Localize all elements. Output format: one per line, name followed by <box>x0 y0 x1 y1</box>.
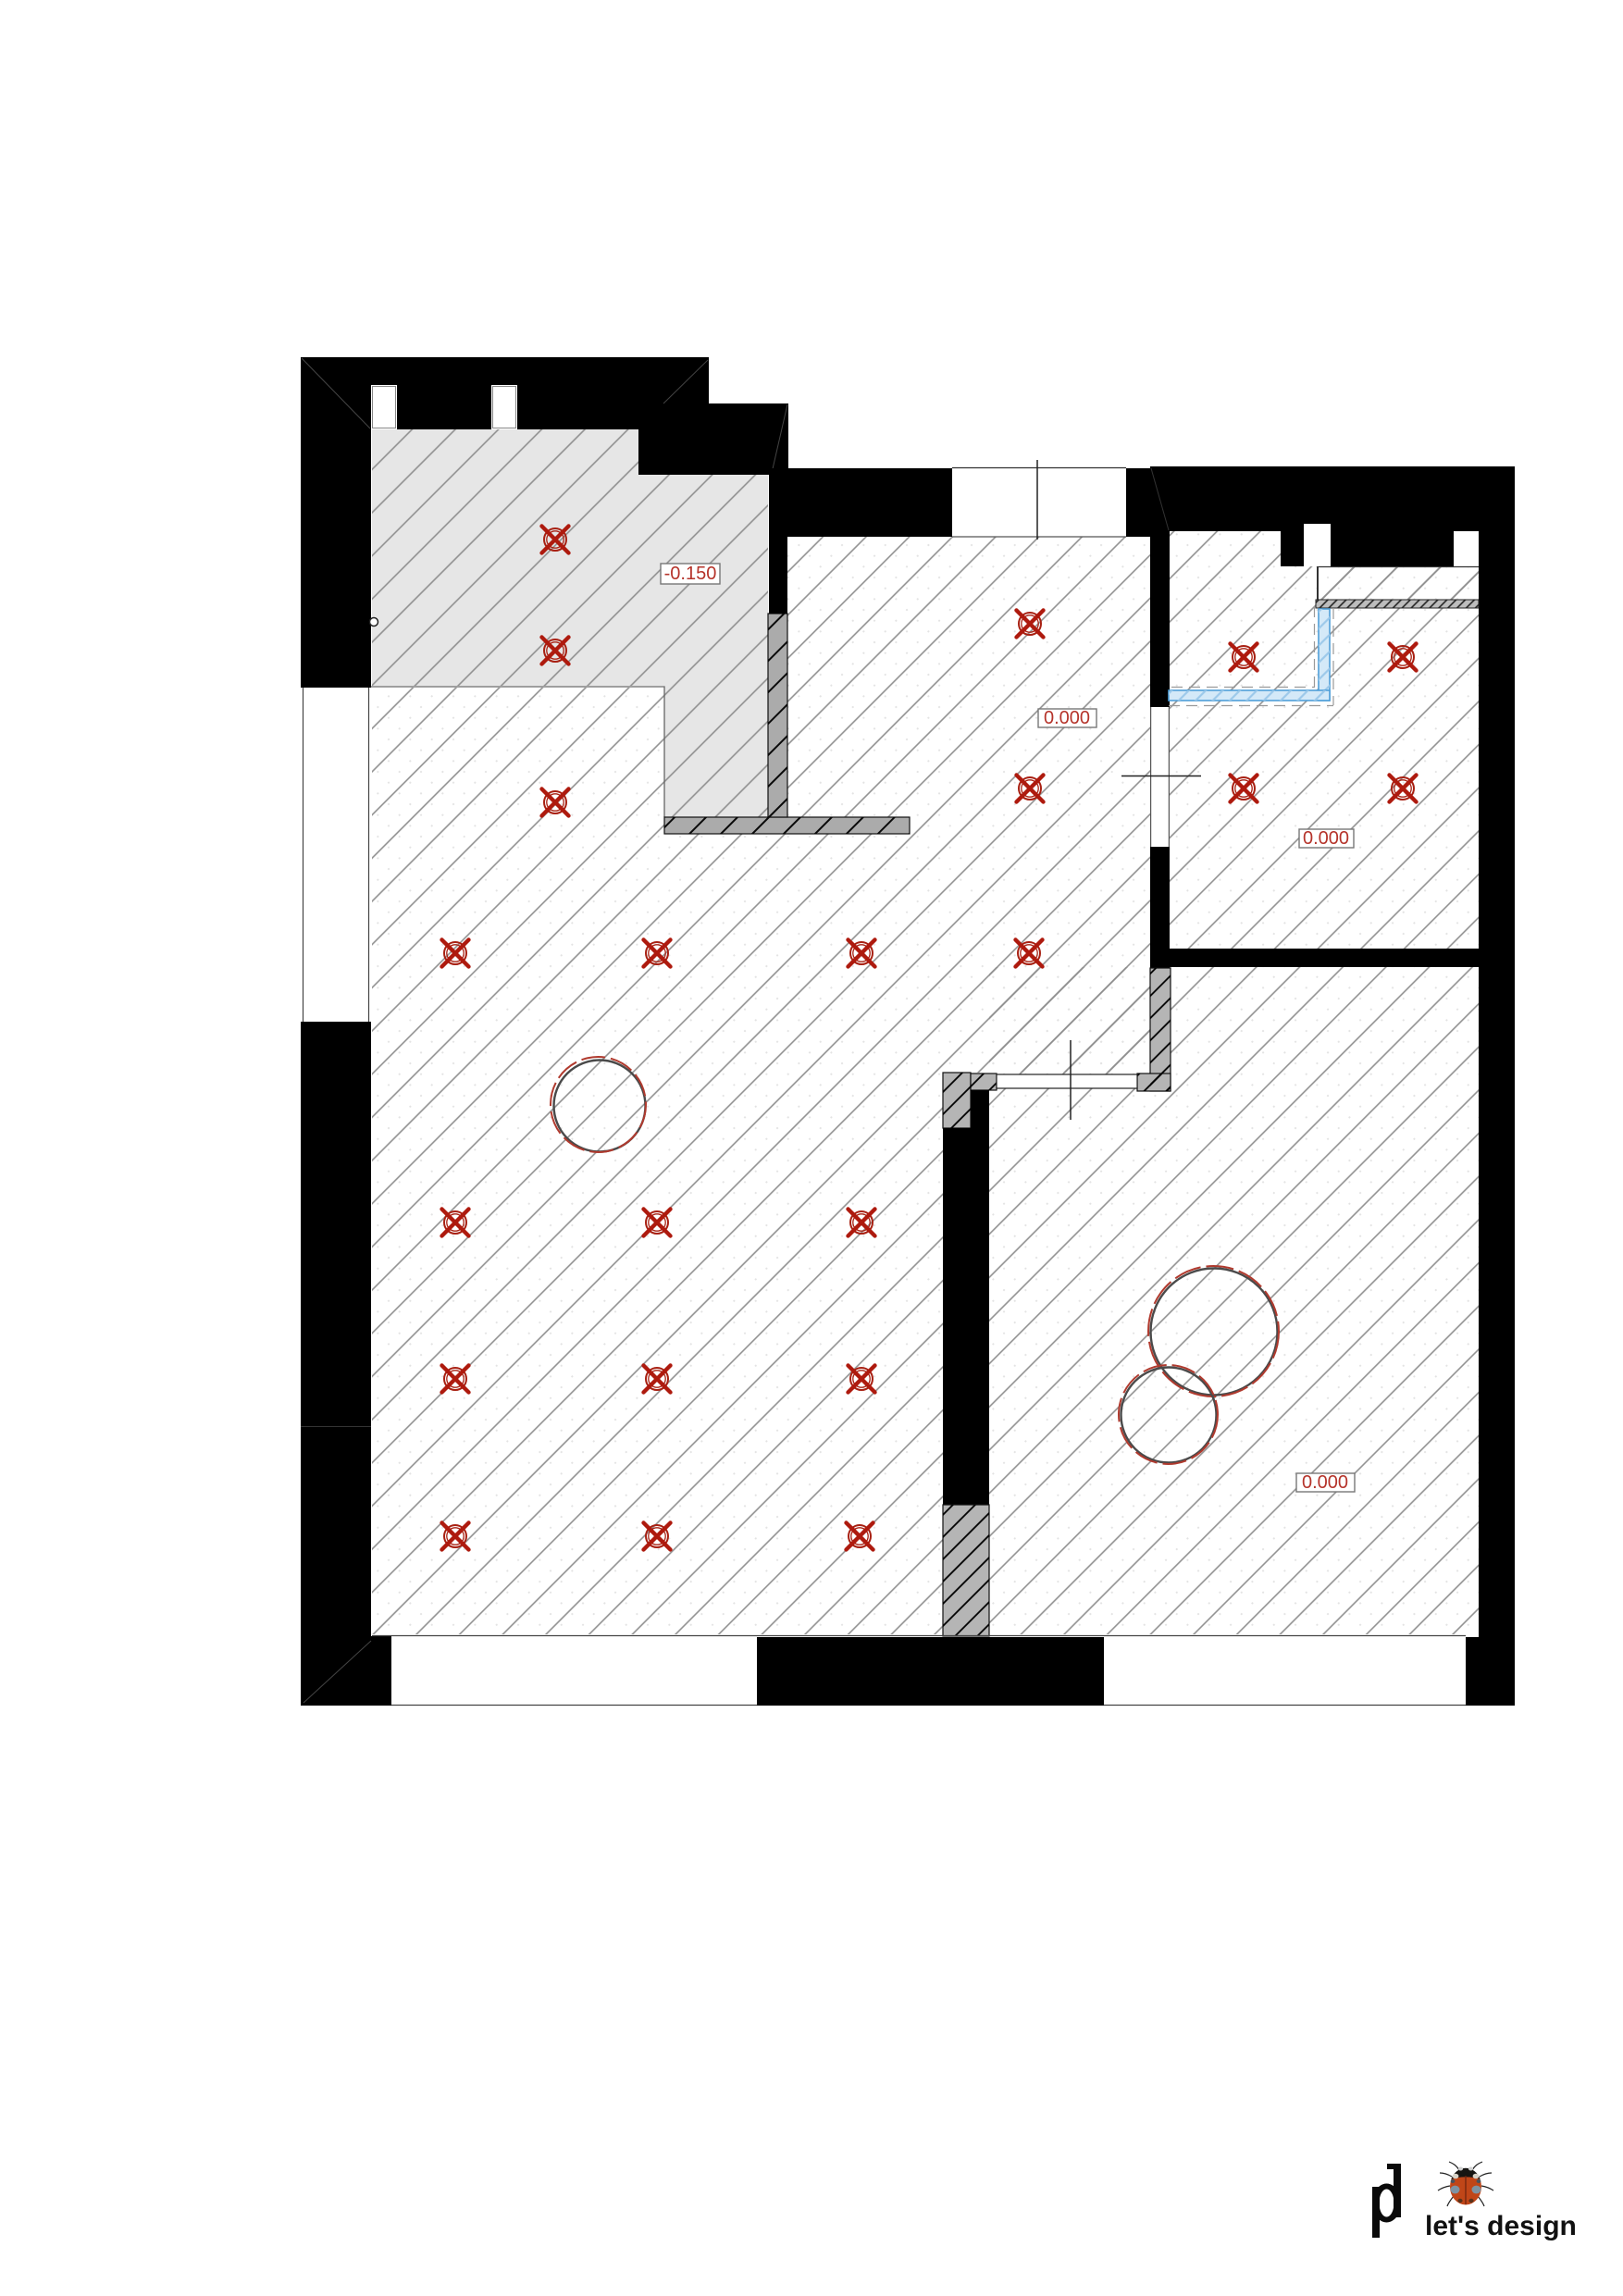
svg-text:0.000: 0.000 <box>1302 1472 1348 1493</box>
svg-text:0.000: 0.000 <box>1044 708 1090 728</box>
svg-text:0.000: 0.000 <box>1303 828 1349 849</box>
svg-text:let's design: let's design <box>1425 2211 1577 2241</box>
svg-text:-0.150: -0.150 <box>664 564 717 584</box>
